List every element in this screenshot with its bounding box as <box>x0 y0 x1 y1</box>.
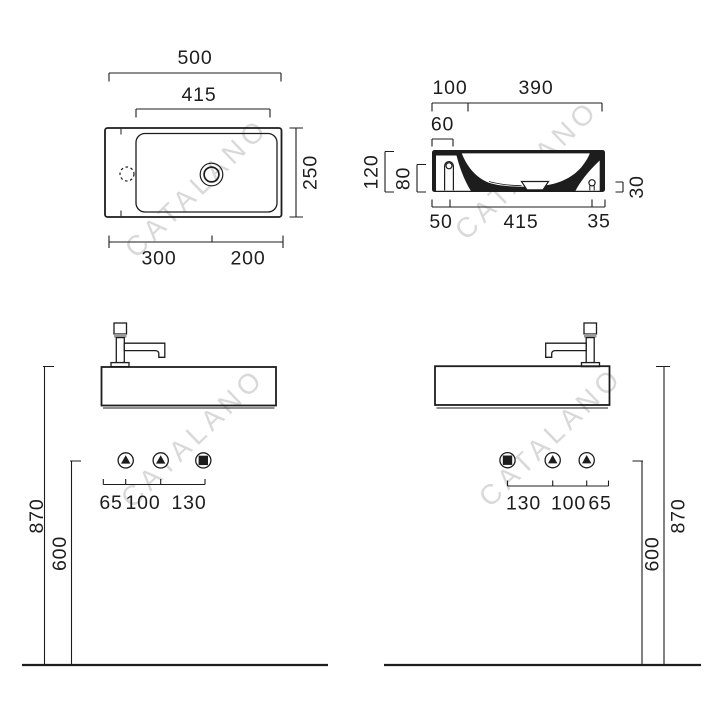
front-view-right: 130 100 65 600 870 <box>384 323 701 665</box>
dim-line-supply-height-left <box>70 461 81 665</box>
outlet-hole-icon <box>589 180 595 186</box>
faucet <box>111 323 165 367</box>
faucet-base <box>111 363 129 367</box>
dim-label-outlet-height: 30 <box>626 175 648 198</box>
supply-symbol <box>579 453 594 468</box>
dim-label-bottom-middle: 415 <box>504 211 539 233</box>
faucet-body <box>586 338 594 363</box>
catalano-watermark: CATALANO <box>473 361 629 513</box>
dim-line-section-bottom <box>432 200 605 208</box>
faucet-handle <box>114 323 127 334</box>
supply-symbol <box>153 453 168 468</box>
dim-label-basin-width: 415 <box>182 84 217 106</box>
dim-label-spacing-2: 100 <box>126 492 161 514</box>
catalano-watermark: CATALANO <box>115 362 271 514</box>
faucet-spout <box>124 343 165 357</box>
dim-label-spacing-2: 100 <box>551 493 586 515</box>
faucet-handle <box>584 323 597 334</box>
dim-label-top-back: 100 <box>433 77 468 99</box>
waste-square-icon <box>503 456 512 465</box>
waste-square-icon <box>199 456 208 465</box>
waste-symbol <box>500 453 515 468</box>
tap-hole-icon <box>120 167 134 181</box>
waste-symbol <box>196 453 211 468</box>
dim-label-spacing-1: 65 <box>99 492 122 514</box>
dim-label-plan-right: 200 <box>231 248 266 270</box>
dim-label-supply-height: 600 <box>642 537 664 572</box>
technical-drawing-canvas: CATALANO CATALANO CATALANO CATALANO 500 … <box>0 0 720 720</box>
dim-line-outlet-height <box>616 182 624 192</box>
dim-label-spacing-1: 130 <box>506 493 541 515</box>
faucet <box>546 323 600 367</box>
dim-label-tap-deck: 60 <box>431 114 454 136</box>
dim-label-rim-height: 870 <box>668 499 690 534</box>
dim-label-plan-left: 300 <box>142 248 177 270</box>
dim-label-top-front: 390 <box>519 77 554 99</box>
dim-label-bottom-front: 35 <box>587 211 610 233</box>
dim-label-supply-height: 600 <box>49 536 71 571</box>
dim-label-bowl-height: 80 <box>393 167 415 190</box>
dim-line-tap-deck <box>432 139 453 147</box>
dim-line-overall-width <box>109 73 281 82</box>
dim-label-overall-depth: 250 <box>300 155 322 190</box>
tap-hole-circle-icon <box>446 163 452 169</box>
faucet-spout <box>546 343 587 357</box>
dim-label-spacing-3: 130 <box>172 492 207 514</box>
supply-symbol <box>545 453 560 468</box>
supply-symbol <box>118 453 133 468</box>
front-view-left: 65 100 130 870 600 <box>22 323 328 665</box>
dim-label-rim-height: 870 <box>26 499 48 534</box>
dim-label-bottom-back: 50 <box>429 211 452 233</box>
dim-label-overall-height: 120 <box>361 155 383 190</box>
dim-label-spacing-3: 65 <box>588 493 611 515</box>
dim-label-overall-width: 500 <box>178 47 213 69</box>
dim-line-bowl-height <box>417 165 426 193</box>
faucet-body <box>116 338 124 363</box>
waste-recess-icon <box>522 182 549 190</box>
